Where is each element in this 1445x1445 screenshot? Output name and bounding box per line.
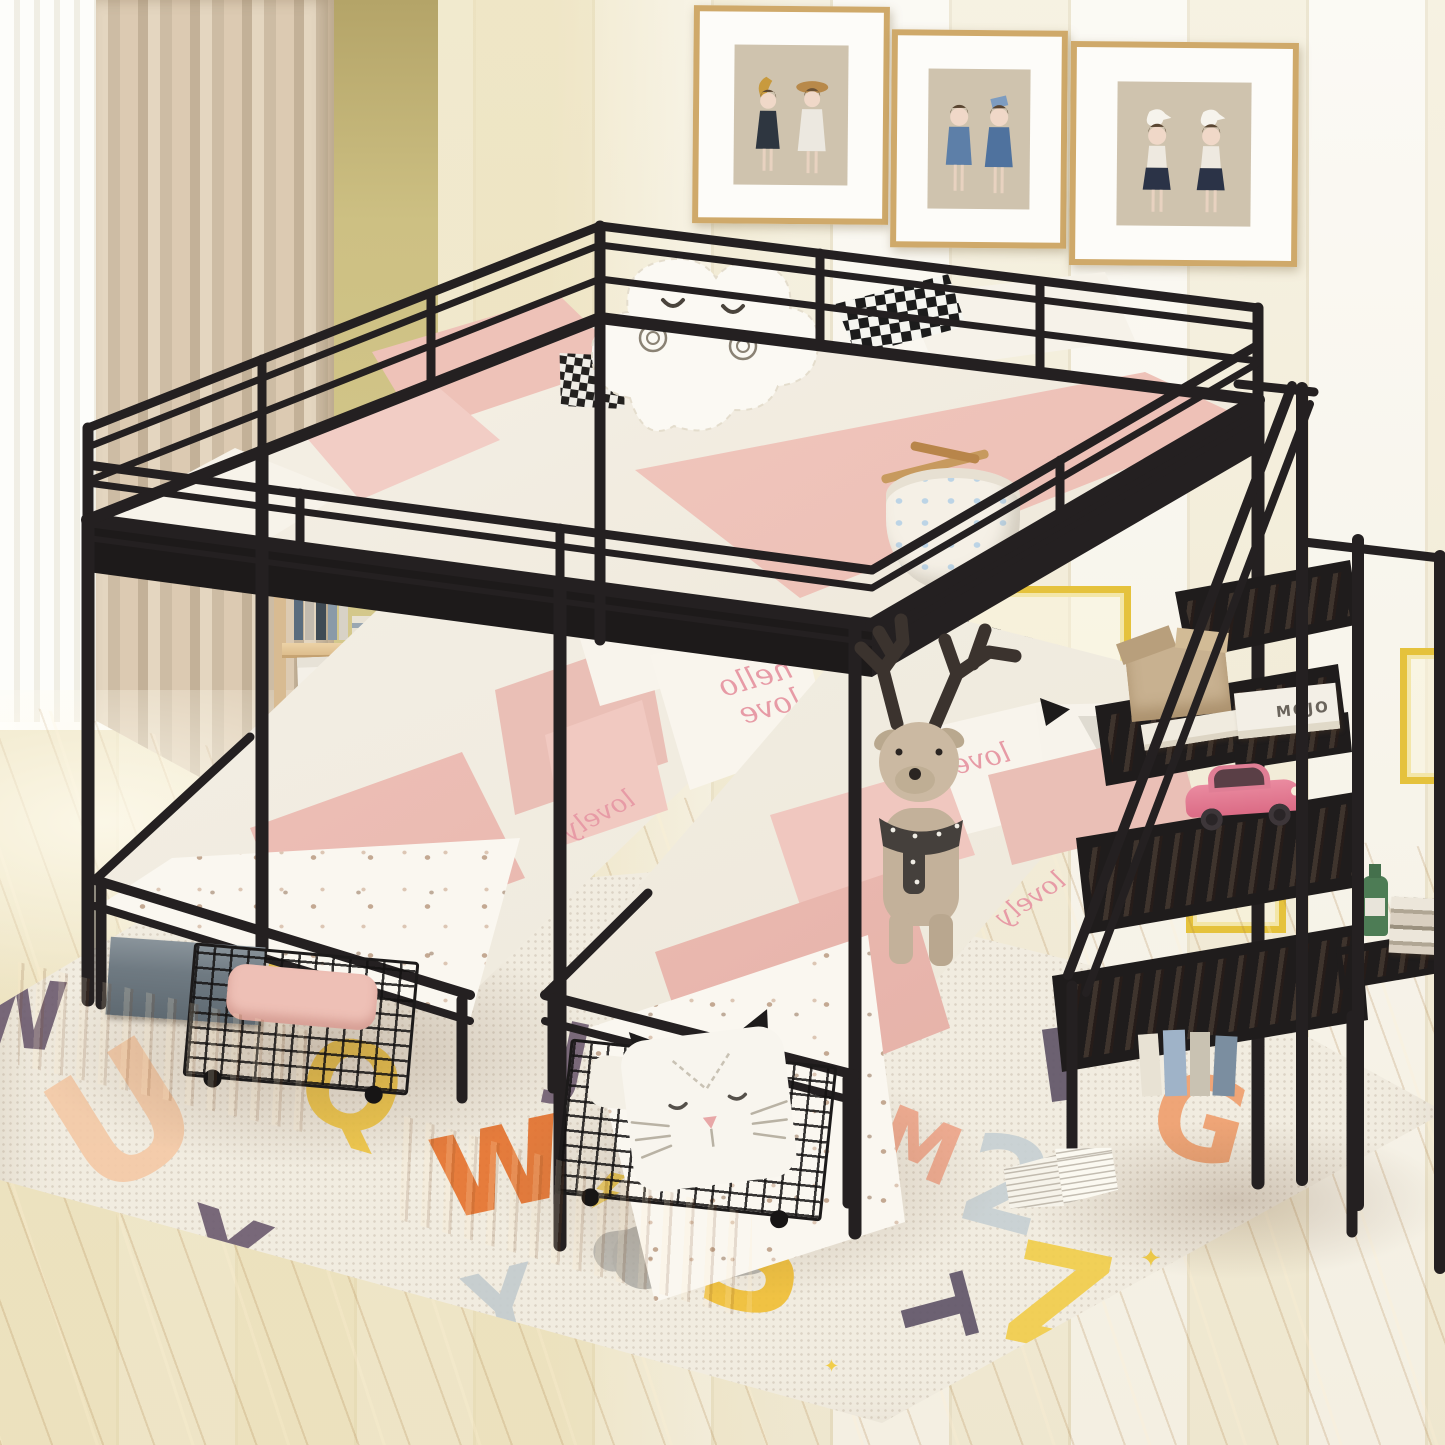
print-girls-in-blue-with-book [928,69,1031,210]
book-spine [1138,1033,1162,1096]
books-under-step4 [1140,1028,1258,1098]
book-stack-right [1389,897,1445,956]
product-photo-kids-bunk-bed: UQBJwXYSZT2MGFZW✦✦✦~ [0,0,1445,1445]
wall-art-frame-2 [890,29,1068,249]
wainscot-molding [1400,648,1445,784]
deer-leg [929,914,953,966]
girls-moon-hat-illustration [735,65,846,186]
book-spine [1212,1035,1237,1096]
toy-car-pink [1183,758,1309,828]
mojo-book-spine-text: MOJO [1275,698,1331,722]
cat-face-pillow [597,994,819,1212]
cardboard-box [1125,640,1232,722]
bottle-neck [1369,864,1381,878]
book-page-right [1055,1140,1119,1204]
deer-antlers-icon [861,620,1015,730]
rug-sparkle-icon: ✦ [824,1358,839,1376]
deer-nose-icon [909,768,921,780]
book-page-left [1003,1155,1064,1215]
book-spine [1163,1030,1187,1097]
girls-blue-book-illustration [928,91,1029,210]
deer-leg [889,912,913,964]
deer-eye-icon [896,749,903,756]
green-bottle [1362,876,1388,936]
book-spine [1190,1032,1210,1096]
bottle-label [1365,898,1385,916]
car-window [1213,767,1264,788]
wall-art-frame-1 [692,5,890,225]
cloud-plush-pillow [575,198,820,463]
deer-scarf-tail [903,838,925,894]
print-girls-with-moon-and-hat [733,44,848,185]
deer-plush-toy [845,612,1030,972]
wall-art-frame-3 [1069,41,1299,267]
box-flap [1175,628,1229,653]
deer-eye-icon [936,749,943,756]
print-girls-with-geese [1116,81,1251,226]
girls-geese-illustration [1118,106,1249,227]
